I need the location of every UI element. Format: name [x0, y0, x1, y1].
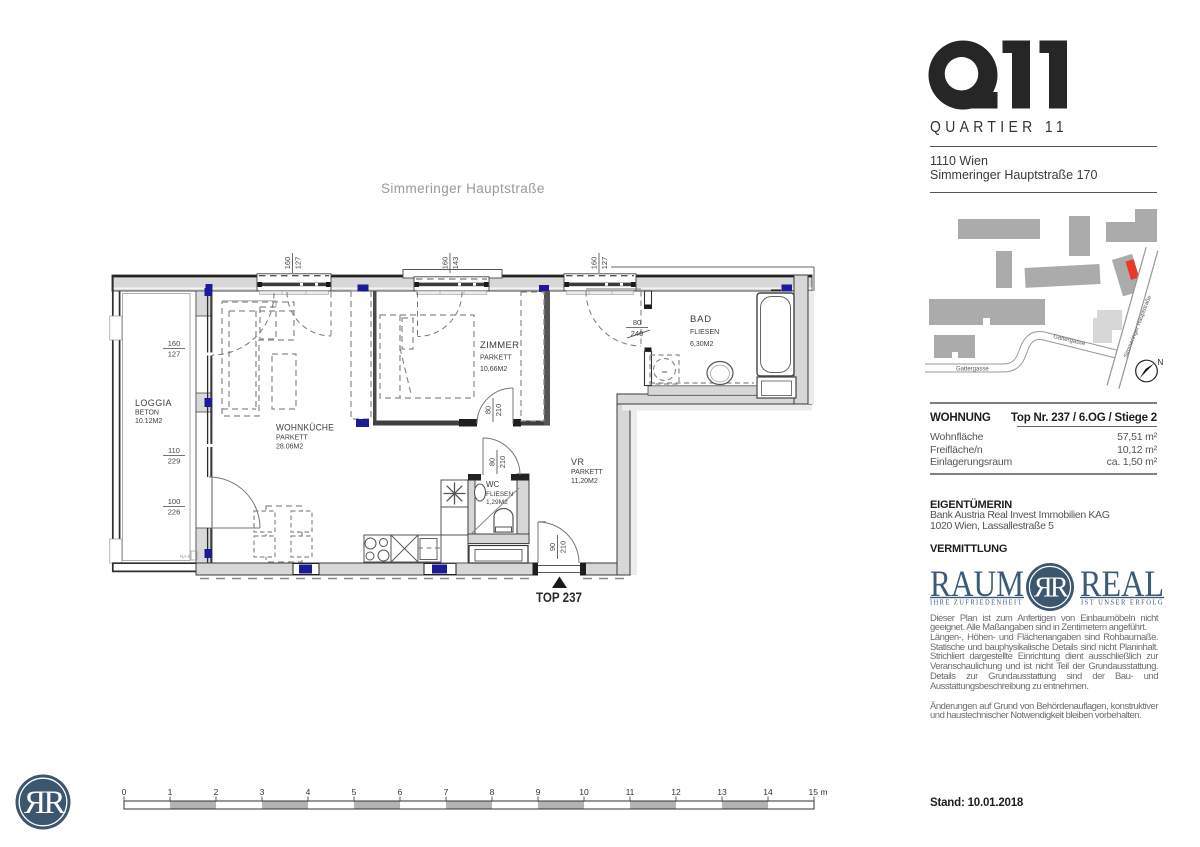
svg-text:160: 160 [283, 257, 292, 270]
svg-text:FLIESEN: FLIESEN [690, 329, 719, 336]
svg-text:9: 9 [536, 787, 541, 797]
svg-text:127: 127 [600, 257, 609, 270]
svg-text:6: 6 [398, 787, 403, 797]
svg-text:4: 4 [306, 787, 311, 797]
svg-text:160: 160 [168, 339, 181, 348]
svg-text:90: 90 [548, 543, 557, 551]
svg-text:28.06M2: 28.06M2 [276, 444, 303, 451]
svg-text:80: 80 [484, 406, 493, 414]
svg-text:210: 210 [559, 541, 568, 554]
svg-text:10: 10 [579, 787, 589, 797]
svg-text:100: 100 [168, 497, 181, 506]
svg-text:229: 229 [168, 457, 181, 466]
svg-text:210: 210 [498, 456, 507, 469]
svg-text:ZIMMER: ZIMMER [480, 340, 519, 351]
svg-text:QUARTIER 11: QUARTIER 11 [930, 119, 1068, 136]
svg-text:Gattergasse: Gattergasse [956, 367, 989, 373]
svg-text:80: 80 [633, 318, 641, 327]
svg-text:12: 12 [671, 787, 681, 797]
svg-text:11,20M2: 11,20M2 [571, 478, 598, 485]
svg-text:1,29M2: 1,29M2 [486, 499, 508, 506]
svg-text:BETON: BETON [135, 410, 159, 417]
svg-text:5: 5 [352, 787, 357, 797]
svg-text:ЯR: ЯR [24, 785, 66, 821]
svg-text:143: 143 [451, 257, 460, 270]
svg-text:10,66M2: 10,66M2 [480, 366, 507, 373]
svg-text:BAD: BAD [690, 314, 712, 325]
svg-text:8: 8 [490, 787, 495, 797]
svg-text:210: 210 [494, 404, 503, 417]
svg-text:FLIESEN: FLIESEN [486, 491, 513, 498]
svg-text:TOP 237: TOP 237 [536, 590, 582, 605]
svg-text:15 m: 15 m [809, 787, 828, 797]
svg-text:PARKETT: PARKETT [276, 435, 308, 442]
svg-text:N: N [1158, 358, 1164, 367]
svg-text:LOGGIA: LOGGIA [135, 398, 172, 408]
svg-text:NA-K: NA-K [180, 554, 191, 559]
svg-text:14: 14 [763, 787, 773, 797]
svg-text:110: 110 [168, 446, 180, 455]
svg-text:3: 3 [260, 787, 265, 797]
svg-text:Simmeringer Hauptstraße: Simmeringer Hauptstraße [381, 181, 545, 196]
svg-text:11: 11 [626, 787, 635, 797]
svg-text:PARKETT: PARKETT [480, 355, 512, 362]
svg-text:PARKETT: PARKETT [571, 469, 603, 476]
svg-text:2: 2 [214, 787, 219, 797]
svg-text:IST UNSER ERFOLG: IST UNSER ERFOLG [1081, 600, 1164, 607]
svg-text:VR: VR [571, 457, 585, 467]
svg-text:13: 13 [717, 787, 727, 797]
svg-text:ЯR: ЯR [1034, 573, 1069, 604]
svg-text:6,30M2: 6,30M2 [690, 341, 713, 348]
svg-text:127: 127 [294, 257, 303, 270]
svg-text:160: 160 [441, 257, 450, 270]
svg-text:240: 240 [631, 329, 644, 338]
svg-text:WOHNKÜCHE: WOHNKÜCHE [276, 423, 334, 434]
svg-text:10.12M2: 10.12M2 [135, 418, 162, 425]
svg-text:7: 7 [444, 787, 449, 797]
svg-text:0: 0 [122, 787, 127, 797]
svg-text:WC: WC [486, 480, 500, 489]
svg-text:160: 160 [590, 257, 599, 270]
svg-text:127: 127 [168, 350, 181, 359]
svg-text:IHRE ZUFRIEDENHEIT: IHRE ZUFRIEDENHEIT [930, 600, 1023, 607]
svg-text:226: 226 [168, 508, 181, 517]
svg-text:80: 80 [488, 458, 497, 466]
svg-text:1: 1 [168, 787, 173, 797]
